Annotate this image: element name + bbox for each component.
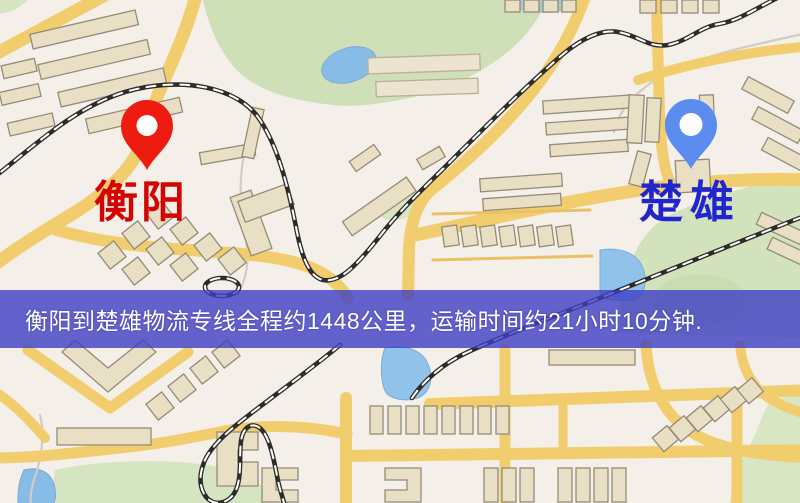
destination-city-label: 楚雄: [639, 181, 741, 225]
origin-city-label: 衡阳: [94, 181, 188, 225]
route-info-banner: 衡阳到楚雄物流专线全程约1448公里，运输时间约21小时10分钟.: [0, 290, 800, 348]
origin-pin-icon: [119, 99, 175, 171]
logistics-route-map: 衡阳 楚雄 衡阳到楚雄物流专线全程约1448公里，运输时间约21小时10分钟.: [0, 0, 800, 503]
destination-pin-icon: [663, 98, 719, 170]
map-canvas: [0, 0, 800, 503]
route-info-text: 衡阳到楚雄物流专线全程约1448公里，运输时间约21小时10分钟.: [25, 302, 702, 336]
